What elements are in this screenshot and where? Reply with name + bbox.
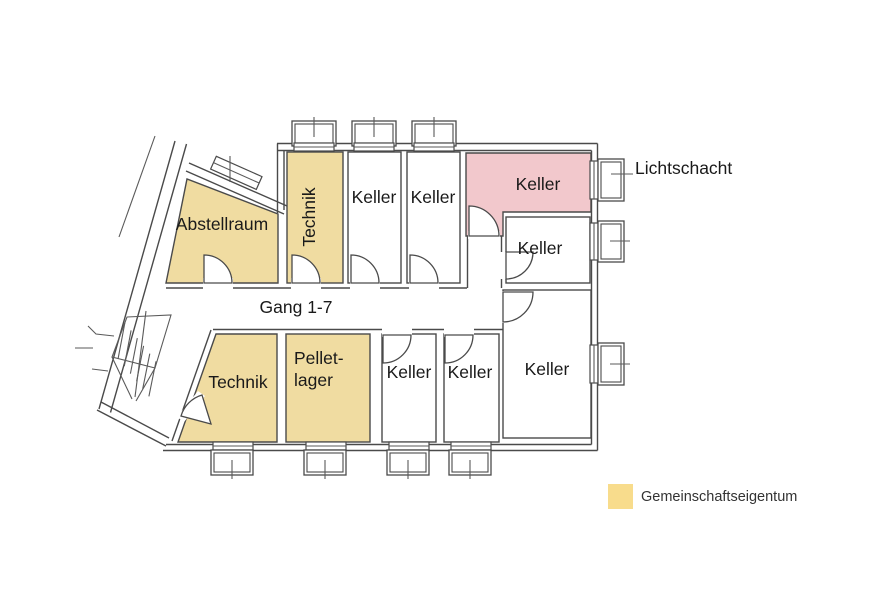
light-shaft bbox=[304, 442, 346, 479]
label-keller-top-1: Keller bbox=[352, 187, 397, 207]
light-shaft bbox=[590, 343, 630, 385]
light-shafts-right bbox=[590, 159, 633, 385]
label-keller-highlighted: Keller bbox=[516, 174, 561, 194]
label-keller-bottom-1: Keller bbox=[387, 362, 432, 382]
cut-line bbox=[119, 136, 155, 237]
stair-walk-line bbox=[135, 311, 146, 397]
light-shaft bbox=[352, 117, 396, 151]
light-shaft-highlighted bbox=[590, 159, 633, 201]
light-shaft bbox=[211, 442, 253, 479]
label-pelletlager-line2: lager bbox=[294, 370, 333, 390]
label-keller-bottom-right: Keller bbox=[525, 359, 570, 379]
light-shafts-bottom bbox=[211, 442, 491, 479]
label-lichtschacht: Lichtschacht bbox=[635, 158, 732, 178]
legend-swatch bbox=[608, 484, 633, 509]
label-pelletlager-line1: Pellet- bbox=[294, 348, 344, 368]
light-shaft bbox=[412, 117, 456, 151]
light-shaft bbox=[449, 442, 491, 479]
label-abstellraum: Abstellraum bbox=[176, 214, 268, 234]
light-shafts-top bbox=[292, 117, 456, 151]
label-keller-mid-right: Keller bbox=[518, 238, 563, 258]
light-shaft bbox=[387, 442, 429, 479]
label-keller-top-2: Keller bbox=[411, 187, 456, 207]
floor-plan-page: Abstellraum Technik Keller Keller Keller… bbox=[0, 0, 877, 602]
legend-label: Gemeinschaftseigentum bbox=[641, 489, 797, 505]
wall-stub bbox=[92, 369, 108, 371]
wall-stub bbox=[88, 326, 114, 336]
label-gang: Gang 1-7 bbox=[260, 297, 333, 317]
light-shaft bbox=[292, 117, 336, 151]
label-technik-top: Technik bbox=[299, 187, 319, 247]
label-keller-bottom-2: Keller bbox=[448, 362, 493, 382]
floor-plan-drawing: Abstellraum Technik Keller Keller Keller… bbox=[0, 0, 877, 602]
legend: Gemeinschaftseigentum bbox=[608, 484, 797, 509]
stair-rail bbox=[112, 357, 132, 399]
light-shaft bbox=[590, 221, 630, 262]
staircase bbox=[112, 311, 171, 401]
label-technik-bottom: Technik bbox=[208, 372, 268, 392]
